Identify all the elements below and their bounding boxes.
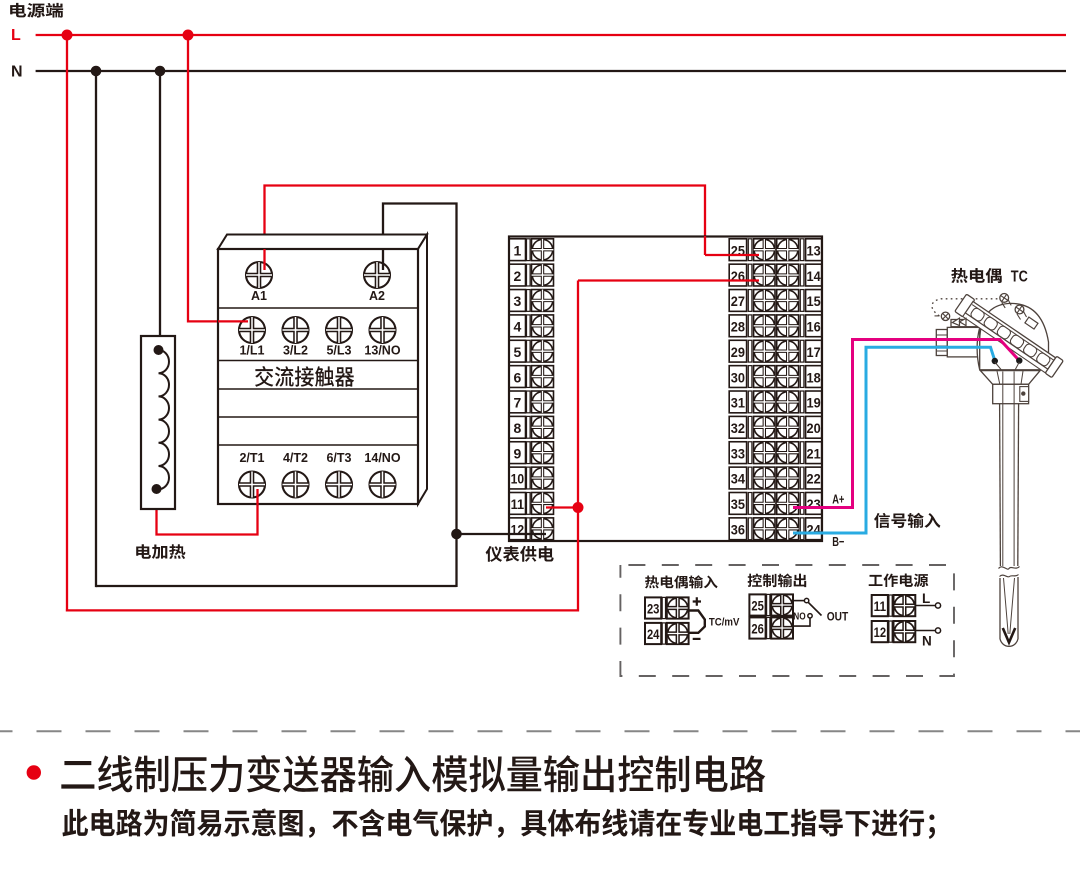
svg-text:15: 15 bbox=[807, 293, 821, 309]
svg-text:19: 19 bbox=[807, 395, 821, 411]
svg-text:2/T1: 2/T1 bbox=[239, 451, 264, 465]
svg-text:36: 36 bbox=[731, 521, 745, 537]
svg-text:5/L3: 5/L3 bbox=[326, 344, 351, 358]
svg-text:12: 12 bbox=[874, 625, 887, 640]
svg-text:OUT: OUT bbox=[827, 611, 849, 623]
svg-text:6: 6 bbox=[514, 369, 522, 385]
svg-text:A2: A2 bbox=[369, 289, 385, 303]
svg-text:30: 30 bbox=[731, 369, 745, 385]
svg-text:NO: NO bbox=[793, 610, 805, 622]
svg-text:16: 16 bbox=[807, 319, 821, 335]
svg-text:3: 3 bbox=[514, 293, 522, 309]
svg-text:11: 11 bbox=[874, 599, 887, 614]
svg-text:A+: A+ bbox=[832, 492, 844, 507]
svg-text:8: 8 bbox=[514, 420, 522, 436]
svg-text:A1: A1 bbox=[251, 289, 267, 303]
svg-text:27: 27 bbox=[731, 293, 745, 309]
svg-text:25: 25 bbox=[751, 599, 764, 614]
svg-text:32: 32 bbox=[731, 420, 745, 436]
svg-text:7: 7 bbox=[514, 395, 522, 411]
svg-text:34: 34 bbox=[731, 471, 745, 487]
svg-text:L: L bbox=[922, 591, 930, 606]
svg-text:14: 14 bbox=[807, 268, 821, 284]
svg-text:29: 29 bbox=[731, 344, 745, 360]
svg-text:TC: TC bbox=[1011, 269, 1028, 286]
svg-text:18: 18 bbox=[807, 369, 821, 385]
svg-text:13: 13 bbox=[807, 242, 821, 258]
svg-text:23: 23 bbox=[647, 602, 660, 617]
svg-text:5: 5 bbox=[514, 344, 522, 360]
svg-text:10: 10 bbox=[511, 471, 525, 487]
svg-text:24: 24 bbox=[807, 521, 821, 537]
svg-text:35: 35 bbox=[731, 496, 745, 512]
svg-text:21: 21 bbox=[807, 445, 821, 461]
svg-text:31: 31 bbox=[731, 395, 745, 411]
svg-text:9: 9 bbox=[514, 445, 522, 461]
svg-text:17: 17 bbox=[807, 344, 821, 360]
svg-text:33: 33 bbox=[731, 445, 745, 461]
svg-text:4: 4 bbox=[514, 319, 522, 335]
svg-text:L: L bbox=[11, 27, 21, 44]
svg-text:22: 22 bbox=[807, 471, 821, 487]
svg-text:14/NO: 14/NO bbox=[364, 451, 400, 465]
svg-text:13/NO: 13/NO bbox=[364, 344, 400, 358]
svg-text:20: 20 bbox=[807, 420, 821, 436]
svg-text:N: N bbox=[11, 64, 23, 81]
svg-text:B−: B− bbox=[832, 534, 844, 549]
svg-text:4/T2: 4/T2 bbox=[283, 451, 308, 465]
svg-text:24: 24 bbox=[647, 627, 660, 642]
svg-text:1: 1 bbox=[514, 242, 522, 258]
svg-text:11: 11 bbox=[511, 496, 525, 512]
svg-text:N: N bbox=[922, 634, 932, 649]
svg-text:TC/mV: TC/mV bbox=[709, 617, 740, 629]
svg-text:6/T3: 6/T3 bbox=[326, 451, 351, 465]
svg-text:1/L1: 1/L1 bbox=[239, 344, 264, 358]
svg-text:23: 23 bbox=[807, 496, 821, 512]
svg-text:28: 28 bbox=[731, 319, 745, 335]
svg-text:26: 26 bbox=[751, 622, 764, 637]
svg-text:2: 2 bbox=[514, 268, 522, 284]
svg-text:3/L2: 3/L2 bbox=[283, 344, 308, 358]
